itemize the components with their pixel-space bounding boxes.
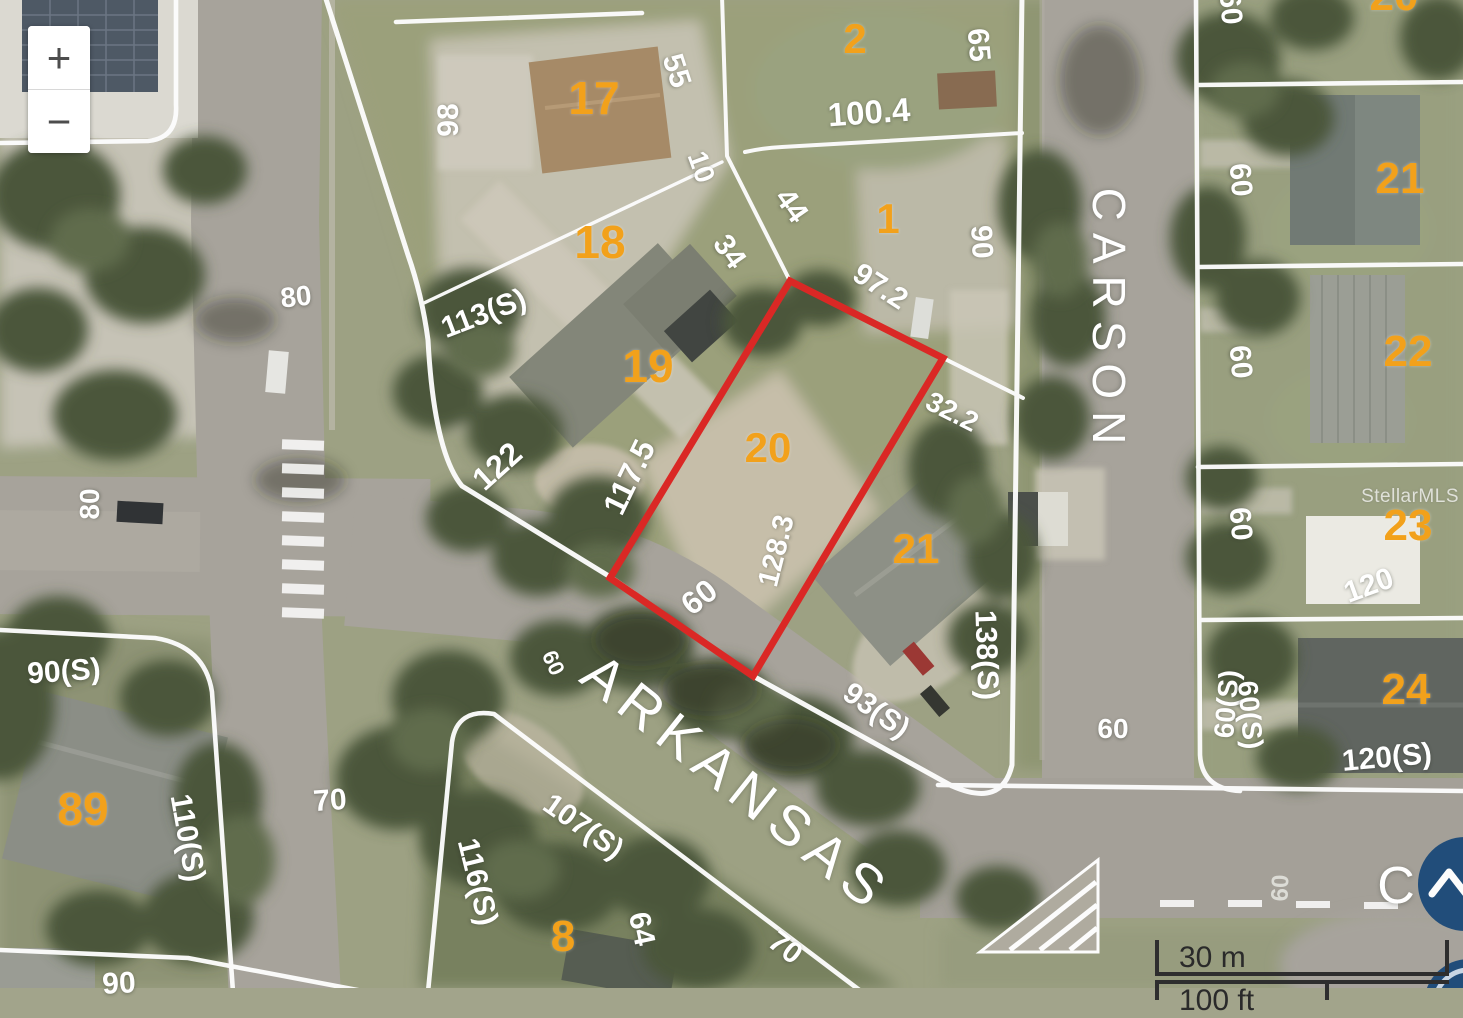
- scale-tick: [1155, 982, 1159, 1000]
- scale-tick: [1445, 940, 1449, 974]
- stellar-mls-watermark: StellarMLS: [1361, 486, 1459, 508]
- zoom-in-button[interactable]: +: [28, 26, 90, 89]
- scale-tick: [1325, 982, 1329, 1000]
- scale-tick: [1155, 940, 1159, 974]
- zoom-control: + −: [28, 26, 90, 153]
- scale-label-imperial: 100 ft: [1179, 984, 1254, 1018]
- aerial-imagery[interactable]: [0, 0, 1463, 988]
- zoom-out-button[interactable]: −: [28, 90, 90, 153]
- scale-label-metric: 30 m: [1179, 941, 1246, 975]
- mls-map-screenshot: { "map": { "type": "parcel-aerial-map", …: [0, 0, 1463, 988]
- scale-bar: 30 m 100 ft: [1155, 940, 1455, 1000]
